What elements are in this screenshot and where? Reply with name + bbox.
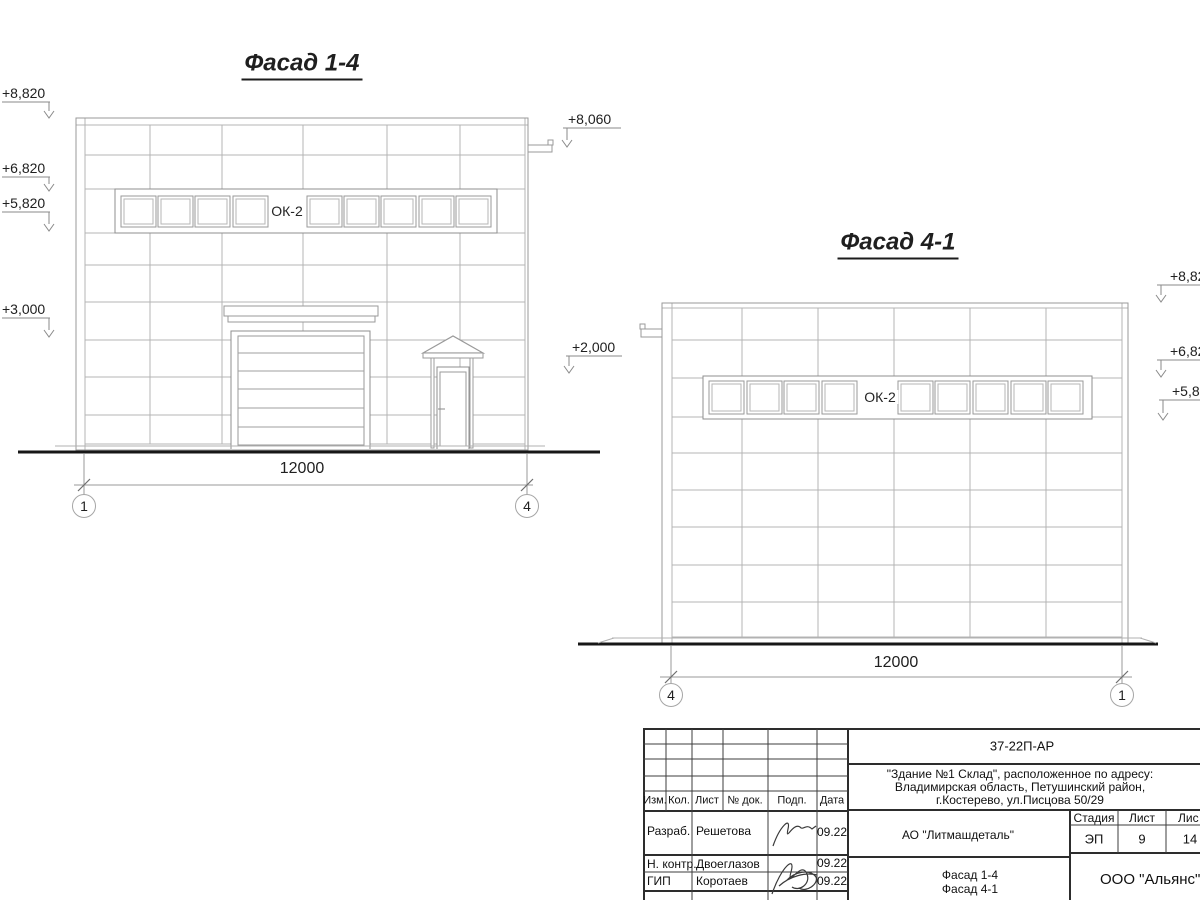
elevation-label-6820-r: +6,82 xyxy=(1170,344,1200,358)
sheets-label: Лис xyxy=(1178,812,1199,824)
facade-4-1-title: Фасад 4-1 xyxy=(838,231,959,260)
role-gip: ГИП xyxy=(647,875,671,887)
entry-door-porch xyxy=(423,336,483,449)
role-nkontr: Н. контр. xyxy=(647,858,697,870)
stage-value: ЭП xyxy=(1085,833,1104,846)
scupper-1-4 xyxy=(528,140,553,152)
col-header-izm: Изм. xyxy=(643,796,667,807)
elevation-label-8060: +8,060 xyxy=(568,112,611,126)
signature-razrab xyxy=(773,823,816,846)
name-nkontr: Двоеглазов xyxy=(696,858,760,870)
elevation-label-3000: +3,000 xyxy=(2,302,45,316)
facade-1-4-title: Фасад 1-4 xyxy=(242,52,363,81)
axis-label-4: 4 xyxy=(523,499,531,513)
sheets-total: 14 xyxy=(1183,833,1197,846)
elevation-label-5820-r: +5,8 xyxy=(1172,384,1200,398)
elevation-label-6820: +6,820 xyxy=(2,161,45,175)
axis-label-1: 1 xyxy=(80,499,88,513)
col-header-list: Лист xyxy=(695,796,719,807)
doc-number: 37-22П-АР xyxy=(990,740,1054,753)
dimension-text-1-4: 12000 xyxy=(280,461,325,477)
date-razrab: 09.22 xyxy=(817,826,847,838)
address-line-3: г.Костерево, ул.Писцова 50/29 xyxy=(936,794,1104,806)
dimension-text-4-1: 12000 xyxy=(874,655,919,671)
date-gip: 09.22 xyxy=(817,875,847,887)
window-tag-1-4: ОК-2 xyxy=(269,204,305,218)
stage-label: Стадия xyxy=(1074,812,1115,824)
signature-gip xyxy=(772,864,817,894)
axis-label-1b: 1 xyxy=(1118,688,1126,702)
name-gip: Коротаев xyxy=(696,875,748,887)
signatures xyxy=(772,823,817,894)
date-nkontr: 09.22 xyxy=(817,857,847,869)
porch-post-right xyxy=(470,358,473,448)
col-header-data: Дата xyxy=(820,796,844,807)
sheet-label: Лист xyxy=(1129,812,1155,824)
client-name: АО "Литмашдеталь" xyxy=(902,829,1014,841)
elevation-label-2000: +2,000 xyxy=(572,340,615,354)
porch-roof xyxy=(423,336,483,353)
scupper-4-1 xyxy=(640,324,662,337)
drawing-canvas xyxy=(0,0,1200,900)
drawing-name-2: Фасад 4-1 xyxy=(942,883,998,895)
role-razrab: Разраб. xyxy=(647,825,690,837)
garage-gate xyxy=(224,306,378,449)
col-header-doc: № док. xyxy=(727,796,762,807)
axis-label-4b: 4 xyxy=(667,688,675,702)
porch-post-left xyxy=(431,358,434,448)
sheet-number: 9 xyxy=(1138,833,1145,846)
drawing-sheet: { "drawing": { "facade14": { "title": "Ф… xyxy=(0,0,1200,900)
facade-4-1-outline xyxy=(662,303,1128,643)
name-razrab: Решетова xyxy=(696,825,751,837)
elevation-label-8820-r: +8,82 xyxy=(1170,269,1200,283)
company-name: ООО "Альянс" xyxy=(1100,872,1200,887)
col-header-podp: Подп. xyxy=(777,796,806,807)
ground-line-4-1 xyxy=(578,638,1158,644)
address-line-2: Владимирская область, Петушинский район, xyxy=(895,781,1145,793)
elevation-label-5820: +5,820 xyxy=(2,196,45,210)
drawing-name-1: Фасад 1-4 xyxy=(942,869,998,881)
window-tag-4-1: ОК-2 xyxy=(862,390,898,404)
window-band-1-4 xyxy=(115,189,497,233)
facade-4-1-grid xyxy=(662,303,1128,643)
elevation-label-8820: +8,820 xyxy=(2,86,45,100)
gate-canopy xyxy=(224,306,378,316)
porch-beam xyxy=(423,353,483,358)
address-line-1: "Здание №1 Склад", расположенное по адре… xyxy=(887,768,1154,780)
col-header-kol: Кол. xyxy=(668,796,690,807)
